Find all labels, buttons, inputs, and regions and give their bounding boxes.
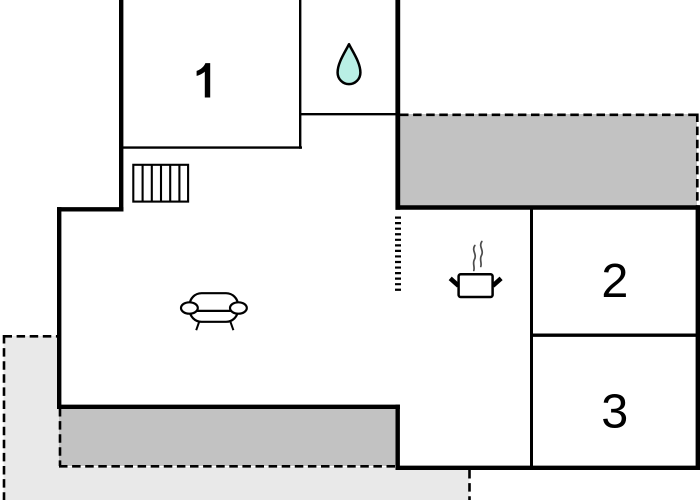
svg-text:3: 3 <box>601 385 628 439</box>
svg-text:2: 2 <box>601 254 628 308</box>
